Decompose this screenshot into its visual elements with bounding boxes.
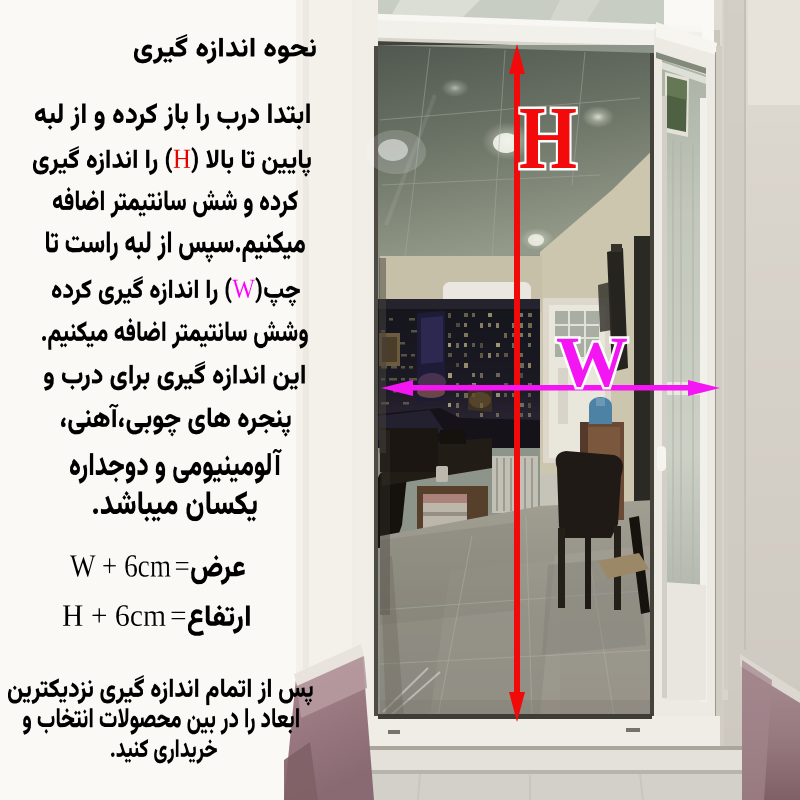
svg-text:W: W	[556, 322, 628, 402]
svg-text:H: H	[519, 89, 577, 188]
